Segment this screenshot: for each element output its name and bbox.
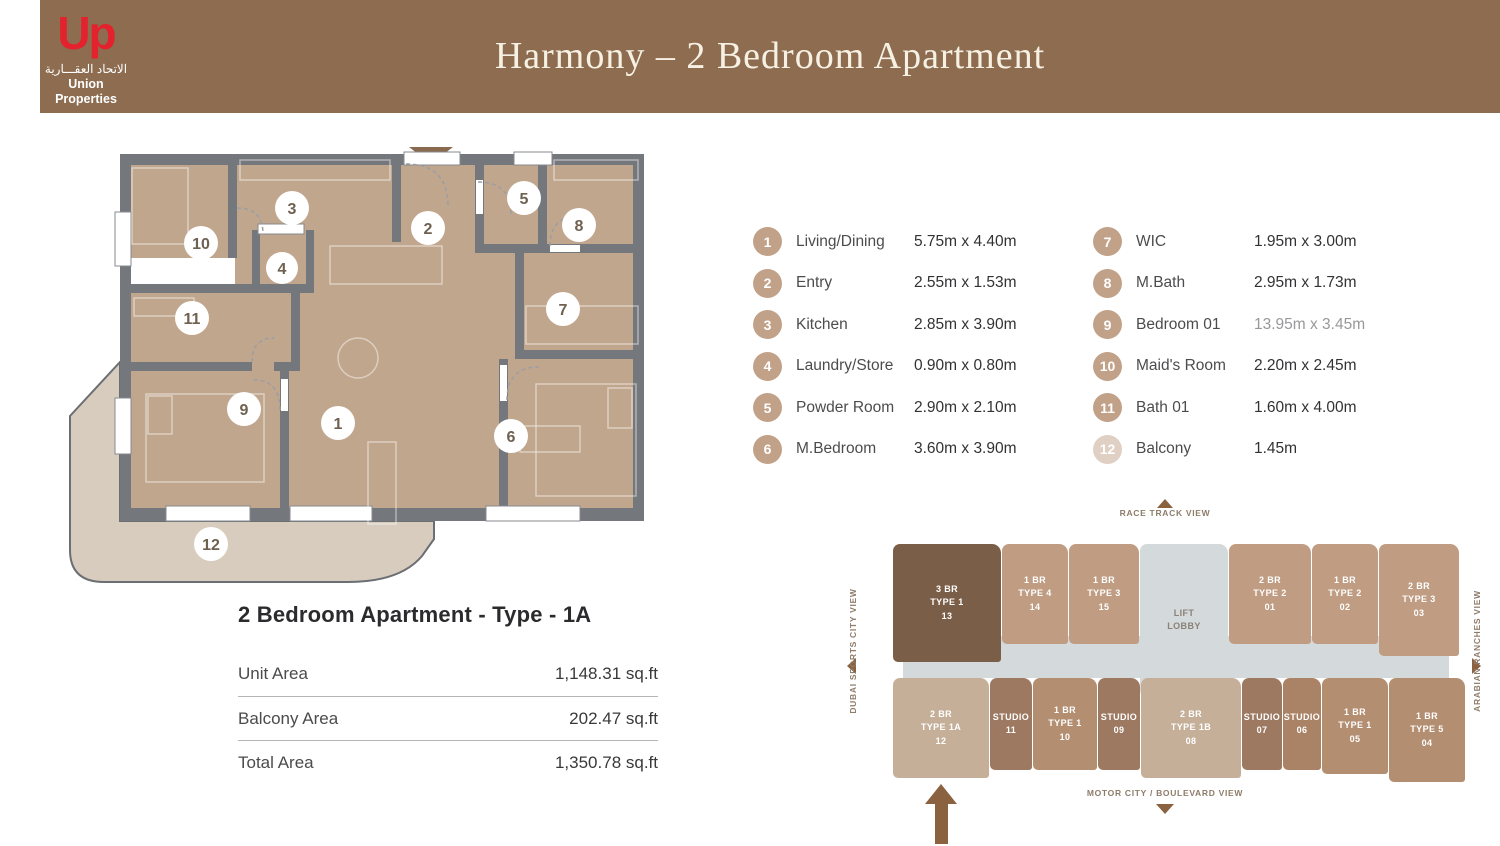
table-row: Balcony Area 202.47 sq.ft bbox=[238, 696, 658, 740]
legend-row: 6M.Bedroom3.60m x 3.90m bbox=[745, 429, 1055, 471]
legend-room-label: Powder Room bbox=[796, 399, 914, 417]
legend-room-label: Bedroom 01 bbox=[1136, 316, 1254, 334]
legend-room-dims: 13.95m x 3.45m bbox=[1254, 316, 1365, 334]
legend-room-dims: 1.60m x 4.00m bbox=[1254, 399, 1357, 417]
area-value: 202.47 sq.ft bbox=[569, 709, 658, 729]
legend-column-1: 1Living/Dining5.75m x 4.40m 2Entry2.55m … bbox=[745, 221, 1055, 470]
legend-room-label: Living/Dining bbox=[796, 233, 914, 251]
keyplan-unit-02: 1 BRTYPE 202 bbox=[1312, 544, 1378, 644]
legend-room-dims: 2.95m x 1.73m bbox=[1254, 274, 1357, 292]
page-title: Harmony – 2 Bedroom Apartment bbox=[40, 34, 1500, 78]
view-label-bottom: MOTOR CITY / BOULEVARD VIEW bbox=[845, 788, 1485, 798]
room-marker-9: 9 bbox=[240, 402, 249, 419]
legend-room-label: Maid's Room bbox=[1136, 357, 1254, 375]
view-label-top: RACE TRACK VIEW bbox=[845, 508, 1485, 518]
legend-column-2: 7WIC1.95m x 3.00m 8M.Bath2.95m x 1.73m 9… bbox=[1085, 221, 1395, 470]
unit-info-panel: 2 Bedroom Apartment - Type - 1A Unit Are… bbox=[238, 602, 658, 784]
keyplan-unit-10: 1 BRTYPE 110 bbox=[1033, 678, 1097, 770]
legend-num-badge: 12 bbox=[1093, 435, 1122, 464]
legend-room-label: Kitchen bbox=[796, 316, 914, 334]
legend-row: 7WIC1.95m x 3.00m bbox=[1085, 221, 1395, 263]
table-row: Unit Area 1,148.31 sq.ft bbox=[238, 652, 658, 696]
apartment-floor bbox=[125, 159, 639, 516]
legend-row: 9Bedroom 0113.95m x 3.45m bbox=[1085, 304, 1395, 346]
area-value: 1,148.31 sq.ft bbox=[555, 664, 658, 684]
keyplan-unit-13: 3 BRTYPE 113 bbox=[893, 544, 1001, 662]
view-arrow-down-icon bbox=[845, 801, 1485, 819]
legend-room-label: M.Bedroom bbox=[796, 440, 914, 458]
legend-room-label: Entry bbox=[796, 274, 914, 292]
legend-room-dims: 0.90m x 0.80m bbox=[914, 357, 1017, 375]
room-marker-6: 6 bbox=[507, 429, 516, 446]
logo-company-name: Union Properties bbox=[40, 77, 132, 107]
keyplan-unit-08: 2 BRTYPE 1B08 bbox=[1141, 678, 1241, 778]
room-marker-3: 3 bbox=[288, 201, 297, 218]
keyplan-unit-09: STUDIO09 bbox=[1098, 678, 1140, 770]
legend-room-dims: 3.60m x 3.90m bbox=[914, 440, 1017, 458]
legend-row: 4Laundry/Store0.90m x 0.80m bbox=[745, 346, 1055, 388]
area-label: Balcony Area bbox=[238, 709, 338, 729]
legend-num-badge: 2 bbox=[753, 269, 782, 298]
room-marker-8: 8 bbox=[575, 218, 584, 235]
legend-room-label: Bath 01 bbox=[1136, 399, 1254, 417]
key-plan-top-row: 3 BRTYPE 113 1 BRTYPE 414 1 BRTYPE 315 L… bbox=[893, 544, 1460, 696]
legend-room-label: WIC bbox=[1136, 233, 1254, 251]
keyplan-unit-01: 2 BRTYPE 201 bbox=[1229, 544, 1311, 644]
legend-row: 1Living/Dining5.75m x 4.40m bbox=[745, 221, 1055, 263]
room-marker-12: 12 bbox=[202, 537, 220, 554]
legend-room-dims: 2.20m x 2.45m bbox=[1254, 357, 1357, 375]
floor-plan-drawing: 1 2 3 4 5 6 7 8 9 10 11 12 bbox=[68, 146, 658, 606]
key-plan-canvas: 3 BRTYPE 113 1 BRTYPE 414 1 BRTYPE 315 L… bbox=[845, 532, 1485, 807]
legend-num-badge: 7 bbox=[1093, 227, 1122, 256]
table-row: Total Area 1,350.78 sq.ft bbox=[238, 740, 658, 784]
legend-room-dims: 2.90m x 2.10m bbox=[914, 399, 1017, 417]
keyplan-unit-14: 1 BRTYPE 414 bbox=[1002, 544, 1068, 644]
legend-row: 11Bath 011.60m x 4.00m bbox=[1085, 387, 1395, 429]
keyplan-unit-06: STUDIO06 bbox=[1283, 678, 1321, 770]
keyplan-unit-15: 1 BRTYPE 315 bbox=[1069, 544, 1139, 644]
legend-num-badge: 5 bbox=[753, 393, 782, 422]
legend-num-badge: 3 bbox=[753, 310, 782, 339]
view-label-left: DUBAI SPORTS CITY VIEW bbox=[848, 581, 858, 721]
keyplan-unit-04: 1 BRTYPE 504 bbox=[1389, 678, 1465, 782]
keyplan-unit-07: STUDIO07 bbox=[1242, 678, 1282, 770]
legend-num-badge: 8 bbox=[1093, 269, 1122, 298]
room-marker-11: 11 bbox=[184, 311, 201, 328]
keyplan-unit-03: 2 BRTYPE 303 bbox=[1379, 544, 1459, 656]
legend-row: 12Balcony1.45m bbox=[1085, 429, 1395, 471]
legend-num-badge: 4 bbox=[753, 352, 782, 381]
unit-type-title: 2 Bedroom Apartment - Type - 1A bbox=[238, 602, 658, 628]
service-shaft bbox=[131, 258, 235, 284]
legend-row: 10Maid's Room2.20m x 2.45m bbox=[1085, 346, 1395, 388]
legend-room-label: Balcony bbox=[1136, 440, 1254, 458]
legend-room-dims: 2.55m x 1.53m bbox=[914, 274, 1017, 292]
keyplan-unit-11: STUDIO11 bbox=[990, 678, 1032, 770]
legend-room-dims: 1.95m x 3.00m bbox=[1254, 233, 1357, 251]
room-marker-4: 4 bbox=[278, 261, 287, 278]
building-key-plan: RACE TRACK VIEW 3 BRTYPE 113 1 BRTYPE 41… bbox=[845, 498, 1485, 840]
legend-num-badge: 6 bbox=[753, 435, 782, 464]
room-marker-2: 2 bbox=[424, 221, 433, 238]
room-marker-10: 10 bbox=[192, 236, 210, 253]
legend-row: 2Entry2.55m x 1.53m bbox=[745, 263, 1055, 305]
area-label: Unit Area bbox=[238, 664, 308, 684]
legend-room-label: M.Bath bbox=[1136, 274, 1254, 292]
key-plan-bottom-row: 2 BRTYPE 1A12 STUDIO11 1 BRTYPE 110 STUD… bbox=[893, 678, 1466, 782]
legend-room-label: Laundry/Store bbox=[796, 357, 914, 375]
keyplan-lift-lobby: LIFTLOBBY bbox=[1140, 544, 1228, 696]
legend-row: 5Powder Room2.90m x 2.10m bbox=[745, 387, 1055, 429]
keyplan-unit-05: 1 BRTYPE 105 bbox=[1322, 678, 1388, 774]
legend-room-dims: 5.75m x 4.40m bbox=[914, 233, 1017, 251]
floor-plan: 1 2 3 4 5 6 7 8 9 10 11 12 bbox=[68, 146, 658, 606]
legend-num-badge: 11 bbox=[1093, 393, 1122, 422]
legend-row: 3Kitchen2.85m x 3.90m bbox=[745, 304, 1055, 346]
area-label: Total Area bbox=[238, 753, 314, 773]
room-marker-7: 7 bbox=[559, 302, 568, 319]
view-label-right: ARABIAN RANCHES VIEW bbox=[1472, 583, 1482, 719]
legend-room-dims: 2.85m x 3.90m bbox=[914, 316, 1017, 334]
legend-room-dims: 1.45m bbox=[1254, 440, 1297, 458]
legend-row: 8M.Bath2.95m x 1.73m bbox=[1085, 263, 1395, 305]
header-band: Up الاتحاد العقـــارية Union Properties … bbox=[40, 0, 1500, 113]
legend-num-badge: 9 bbox=[1093, 310, 1122, 339]
area-value: 1,350.78 sq.ft bbox=[555, 753, 658, 773]
legend-num-badge: 10 bbox=[1093, 352, 1122, 381]
keyplan-unit-12: 2 BRTYPE 1A12 bbox=[893, 678, 989, 778]
area-table: Unit Area 1,148.31 sq.ft Balcony Area 20… bbox=[238, 652, 658, 784]
room-marker-1: 1 bbox=[334, 416, 343, 433]
legend-num-badge: 1 bbox=[753, 227, 782, 256]
room-marker-5: 5 bbox=[520, 191, 529, 208]
